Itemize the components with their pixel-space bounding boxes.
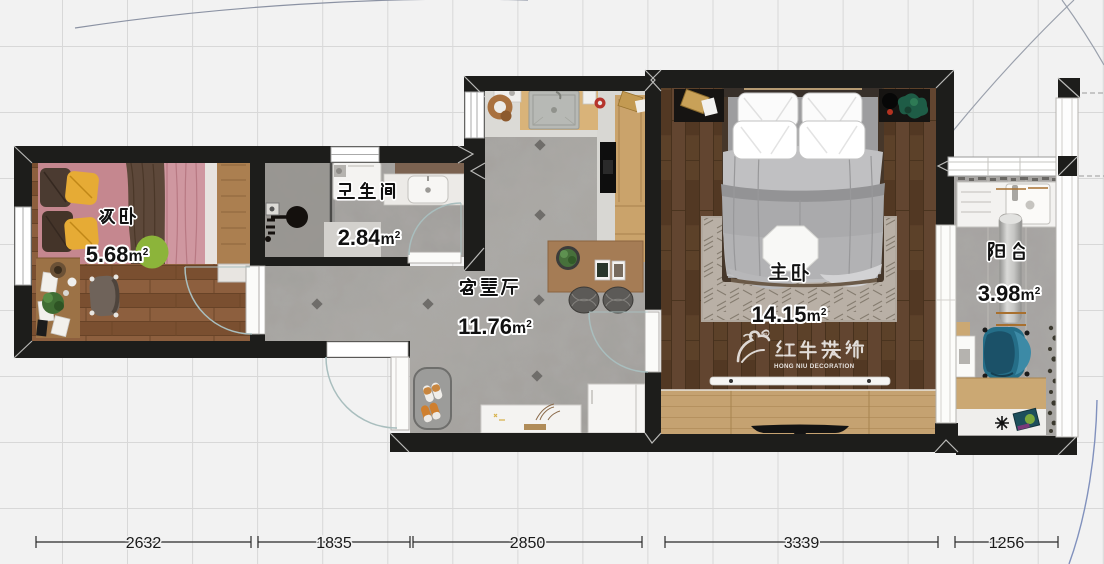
- svg-text:2850: 2850: [510, 535, 546, 552]
- svg-text:1835: 1835: [316, 535, 352, 552]
- svg-text:3339: 3339: [784, 535, 820, 552]
- svg-text:1256: 1256: [989, 535, 1025, 552]
- svg-text:2632: 2632: [126, 535, 162, 552]
- svg-text:HONG NIU DECORATION: HONG NIU DECORATION: [774, 363, 855, 370]
